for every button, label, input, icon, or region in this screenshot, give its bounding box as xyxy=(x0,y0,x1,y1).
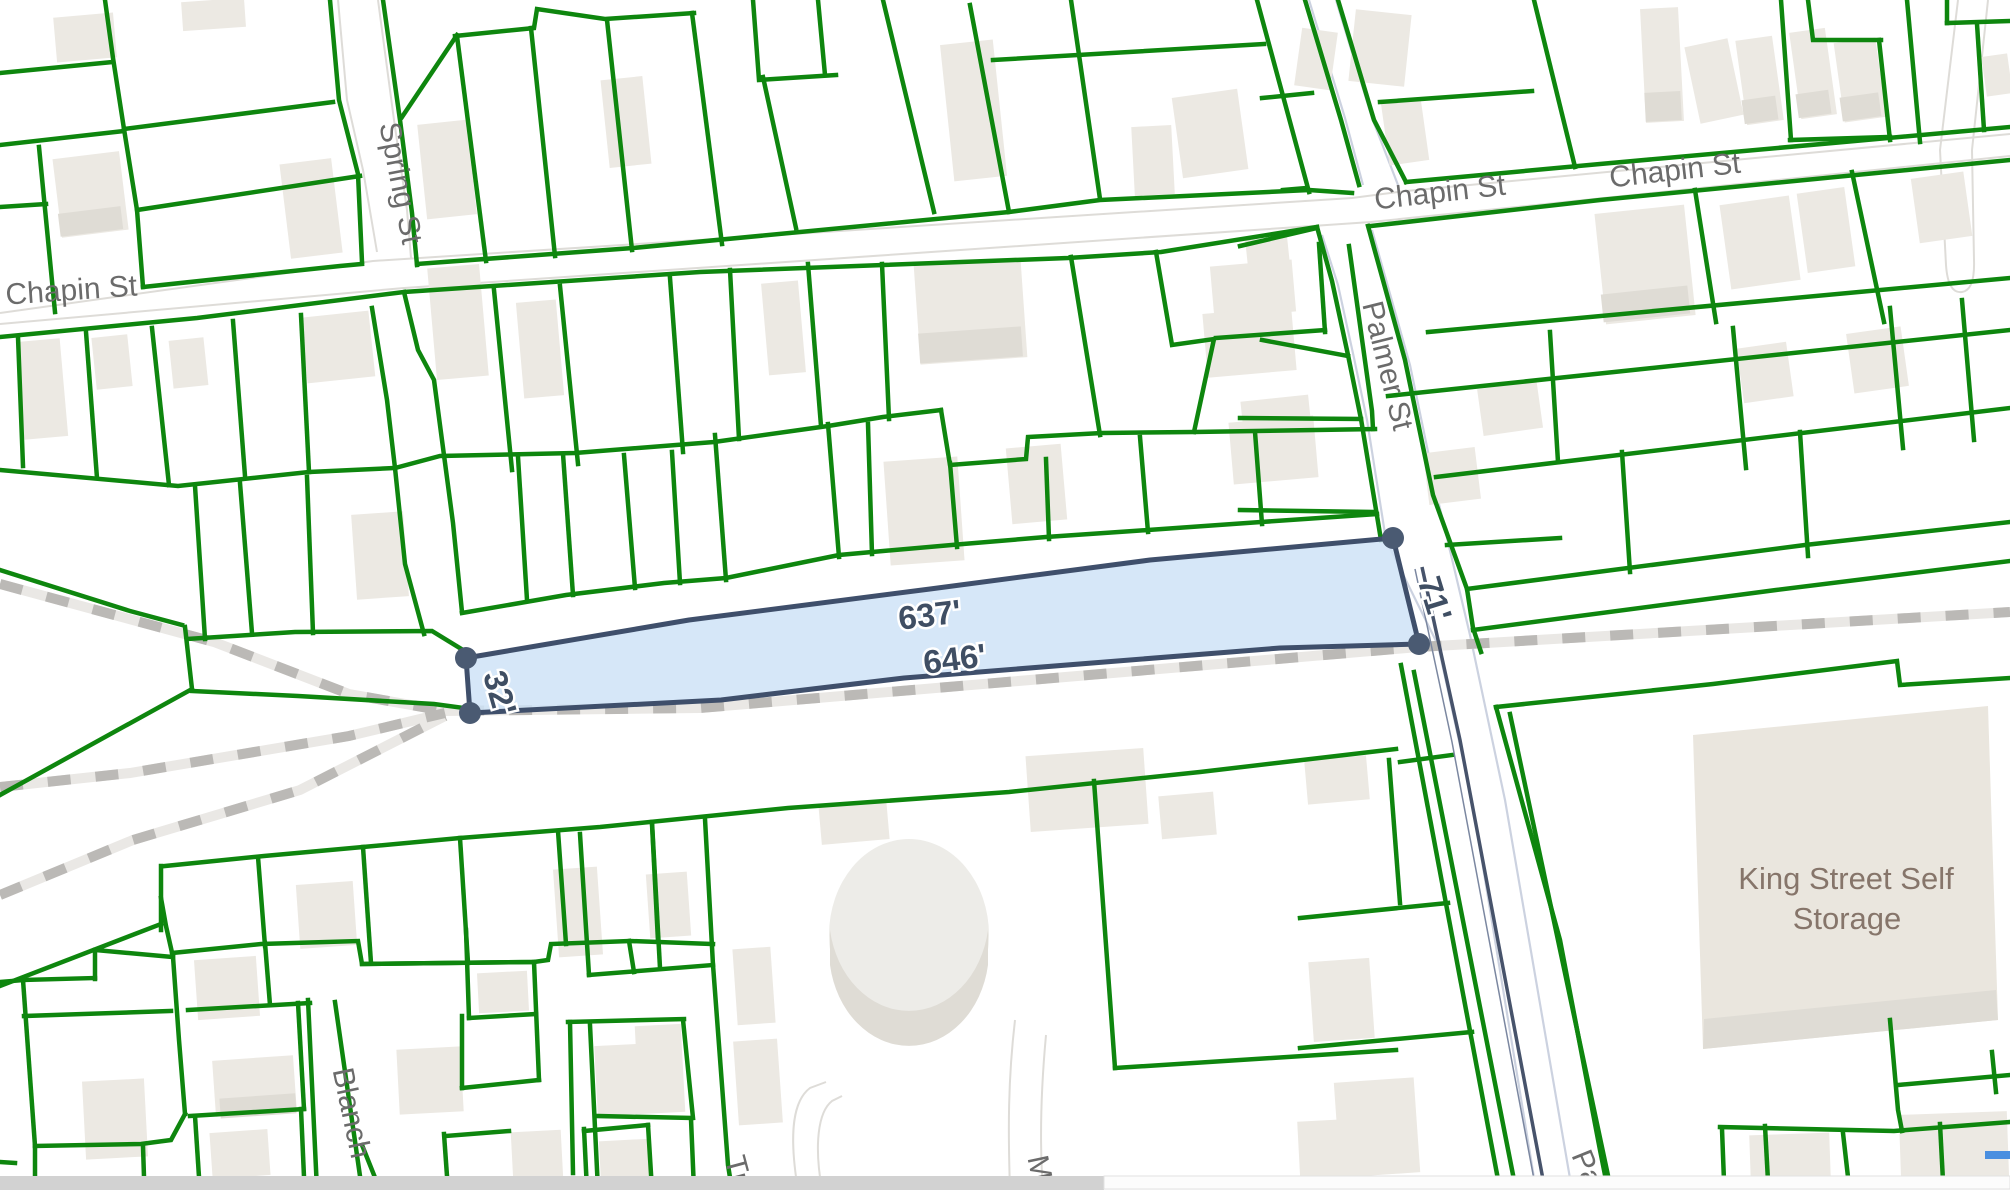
svg-text:King Street Self: King Street Self xyxy=(1738,861,1954,896)
svg-text:Storage: Storage xyxy=(1793,901,1902,936)
svg-text:637': 637' xyxy=(896,592,963,636)
svg-text:646': 646' xyxy=(921,636,988,680)
